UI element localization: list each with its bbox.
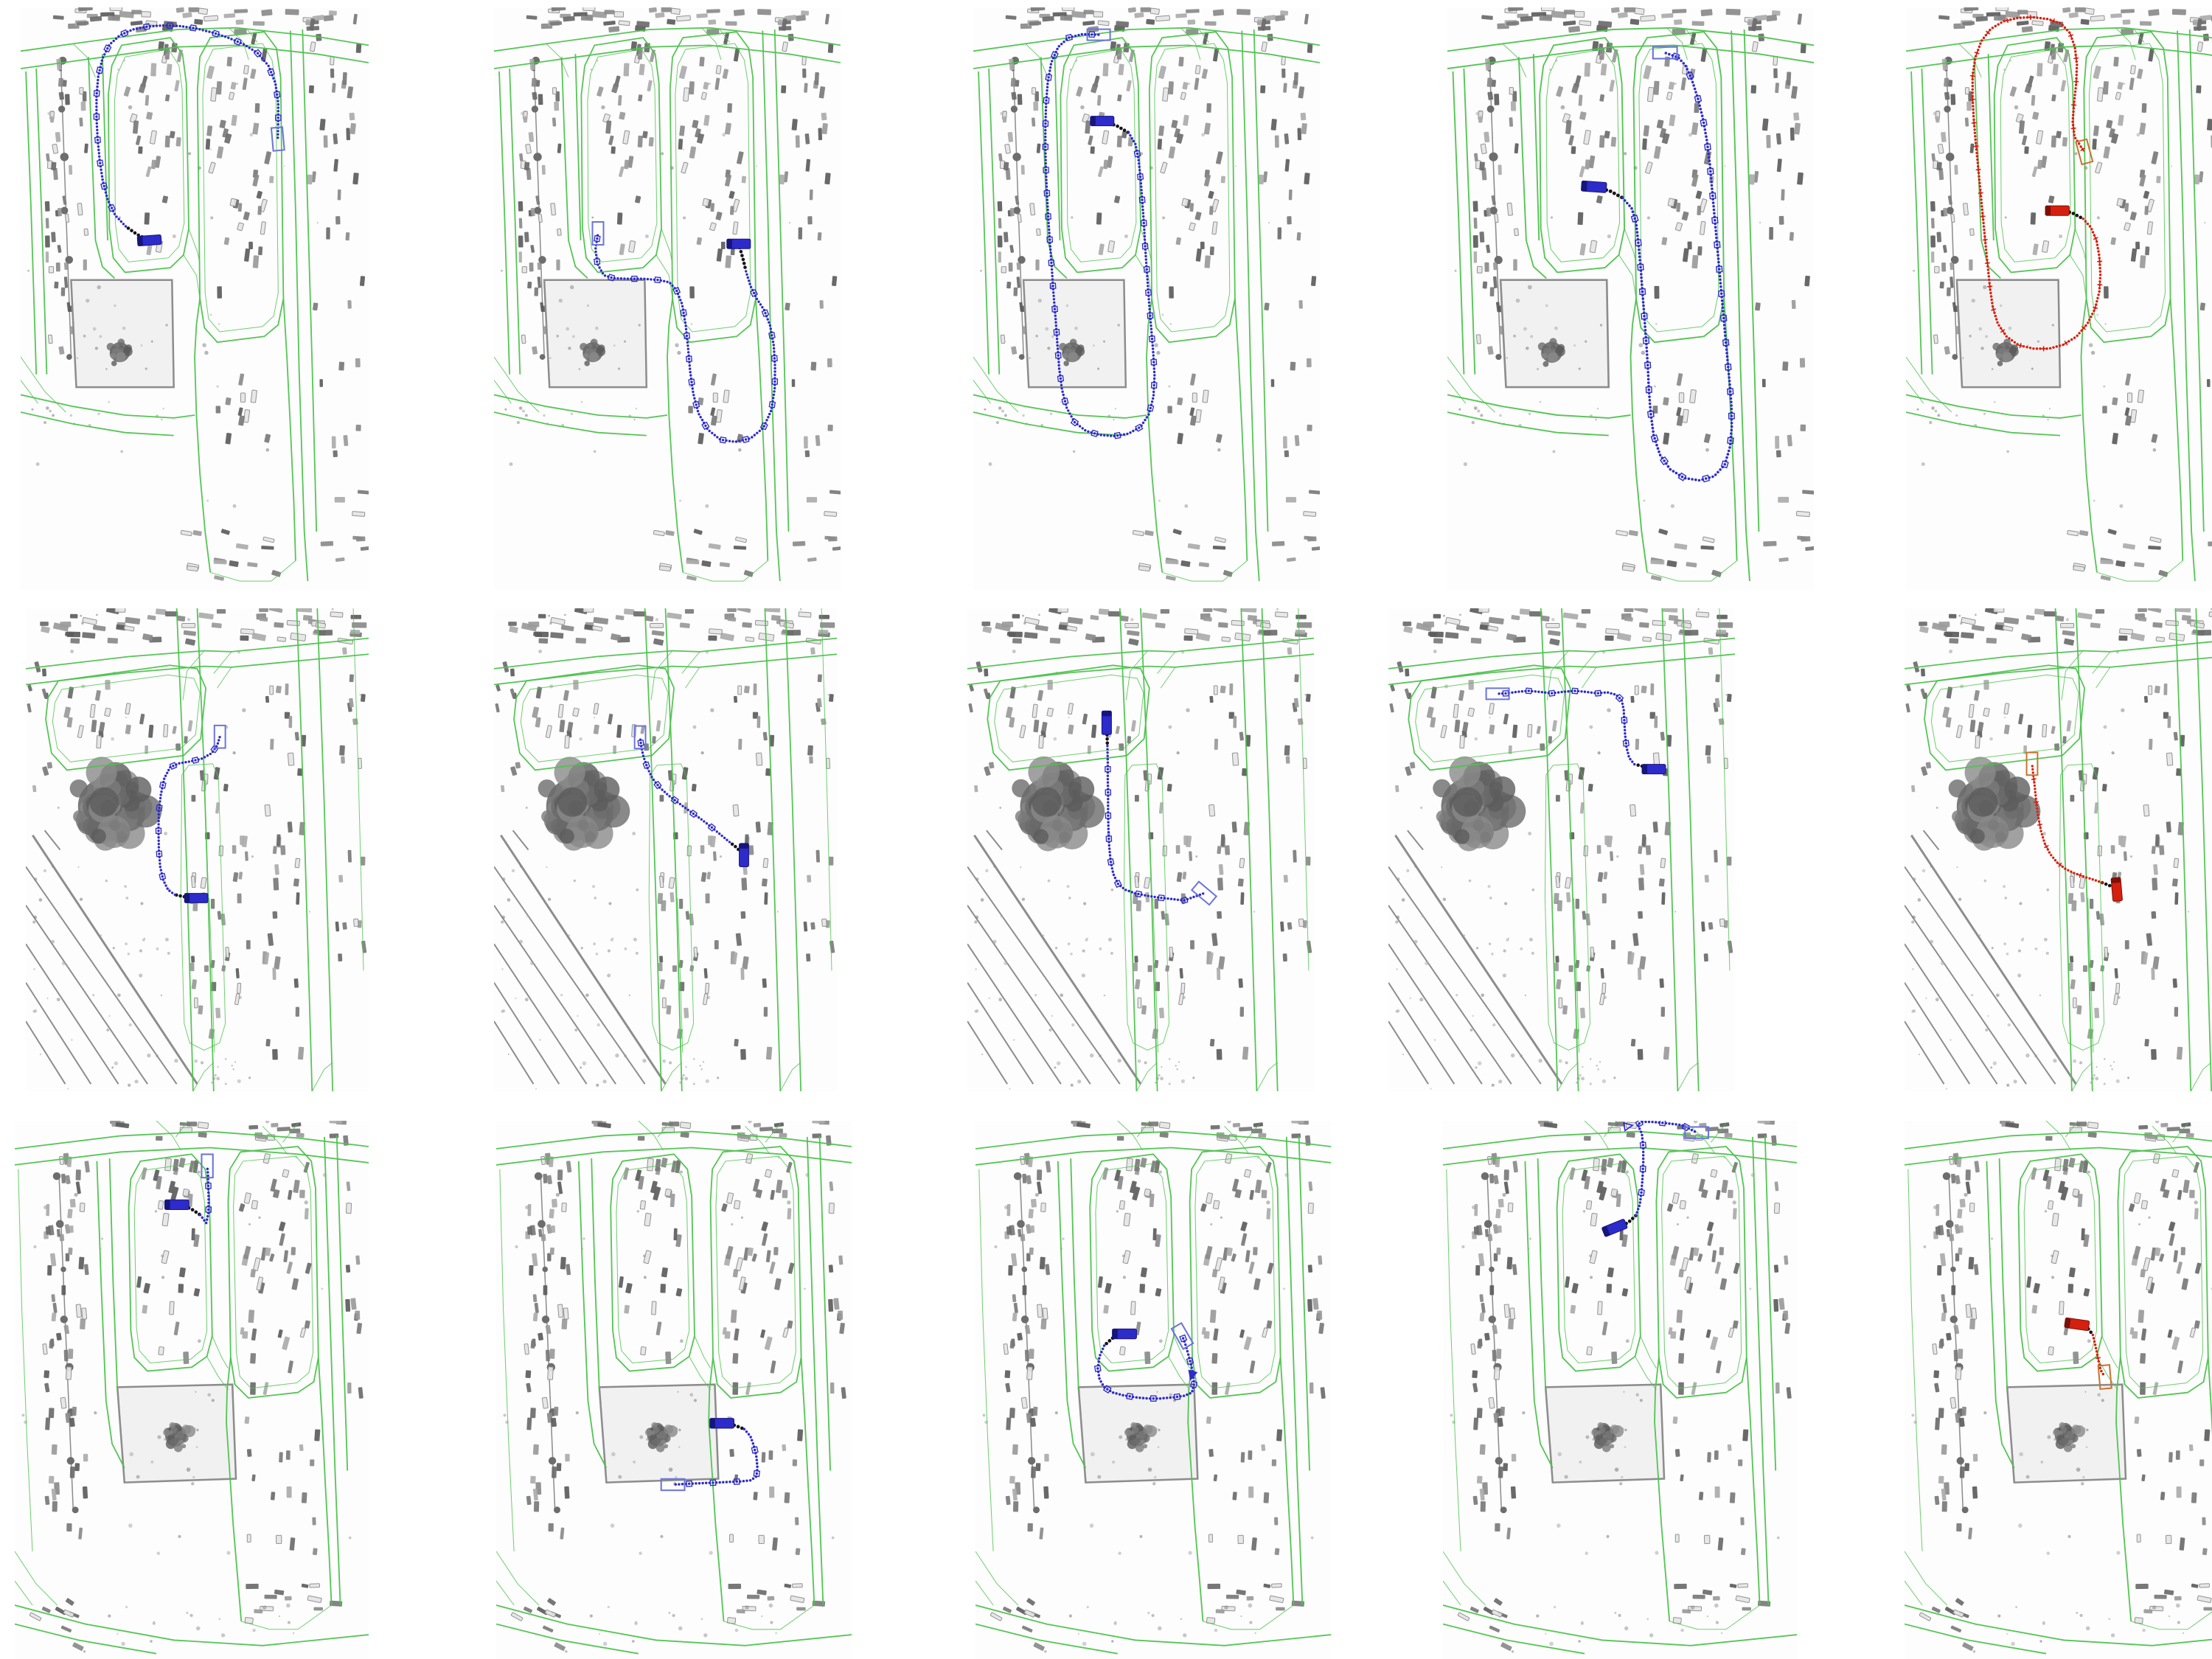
vehicle-marker: [2045, 206, 2069, 215]
map-image-r1c3: [973, 7, 1320, 590]
vehicle-marker: [740, 844, 749, 867]
map-image-r2c1: [26, 608, 369, 1091]
map-image-r2c2: [494, 608, 837, 1091]
figure-grid: [0, 0, 2212, 1659]
map-image-r2c5: [1905, 608, 2212, 1091]
map-panel-r1c3: [973, 7, 1320, 590]
map-panel-r2c1: [26, 608, 369, 1091]
map-image-r3c4: [1443, 1121, 1797, 1659]
map-panel-r2c4: [1388, 608, 1735, 1091]
map-image-r1c4: [1447, 7, 1814, 590]
vehicle-marker: [1113, 1329, 1137, 1338]
map-image-r3c3: [975, 1121, 1331, 1659]
map-panel-r3c4: [1443, 1121, 1797, 1659]
map-panel-r3c5: [1905, 1121, 2212, 1659]
map-image-r1c5: [1906, 7, 2212, 590]
vehicle-marker: [727, 239, 751, 248]
map-image-r1c1: [21, 7, 369, 590]
vehicle-marker: [1581, 181, 1607, 192]
map-image-r3c5: [1905, 1121, 2212, 1659]
map-panel-r2c5: [1905, 608, 2212, 1091]
map-image-r3c2: [496, 1121, 852, 1659]
map-panel-r3c2: [496, 1121, 852, 1659]
map-panel-r3c1: [15, 1121, 369, 1659]
vehicle-marker: [184, 894, 208, 903]
map-panel-r2c2: [494, 608, 837, 1091]
map-panel-r3c3: [975, 1121, 1331, 1659]
map-panel-r2c3: [967, 608, 1314, 1091]
vehicle-marker: [137, 234, 161, 246]
vehicle-marker: [164, 1200, 189, 1209]
vehicle-marker: [1091, 116, 1114, 126]
vehicle-marker: [2111, 877, 2123, 902]
map-image-r1c2: [494, 7, 841, 590]
map-panel-r1c5: [1906, 7, 2212, 590]
map-panel-r1c4: [1447, 7, 1814, 590]
map-panel-r1c2: [494, 7, 841, 590]
map-panel-r1c1: [21, 7, 369, 590]
vehicle-marker: [1102, 711, 1111, 734]
vehicle-marker: [710, 1419, 734, 1428]
map-image-r2c4: [1388, 608, 1735, 1091]
map-image-r2c3: [967, 608, 1314, 1091]
map-image-r3c1: [15, 1121, 369, 1659]
vehicle-marker: [1642, 765, 1666, 774]
